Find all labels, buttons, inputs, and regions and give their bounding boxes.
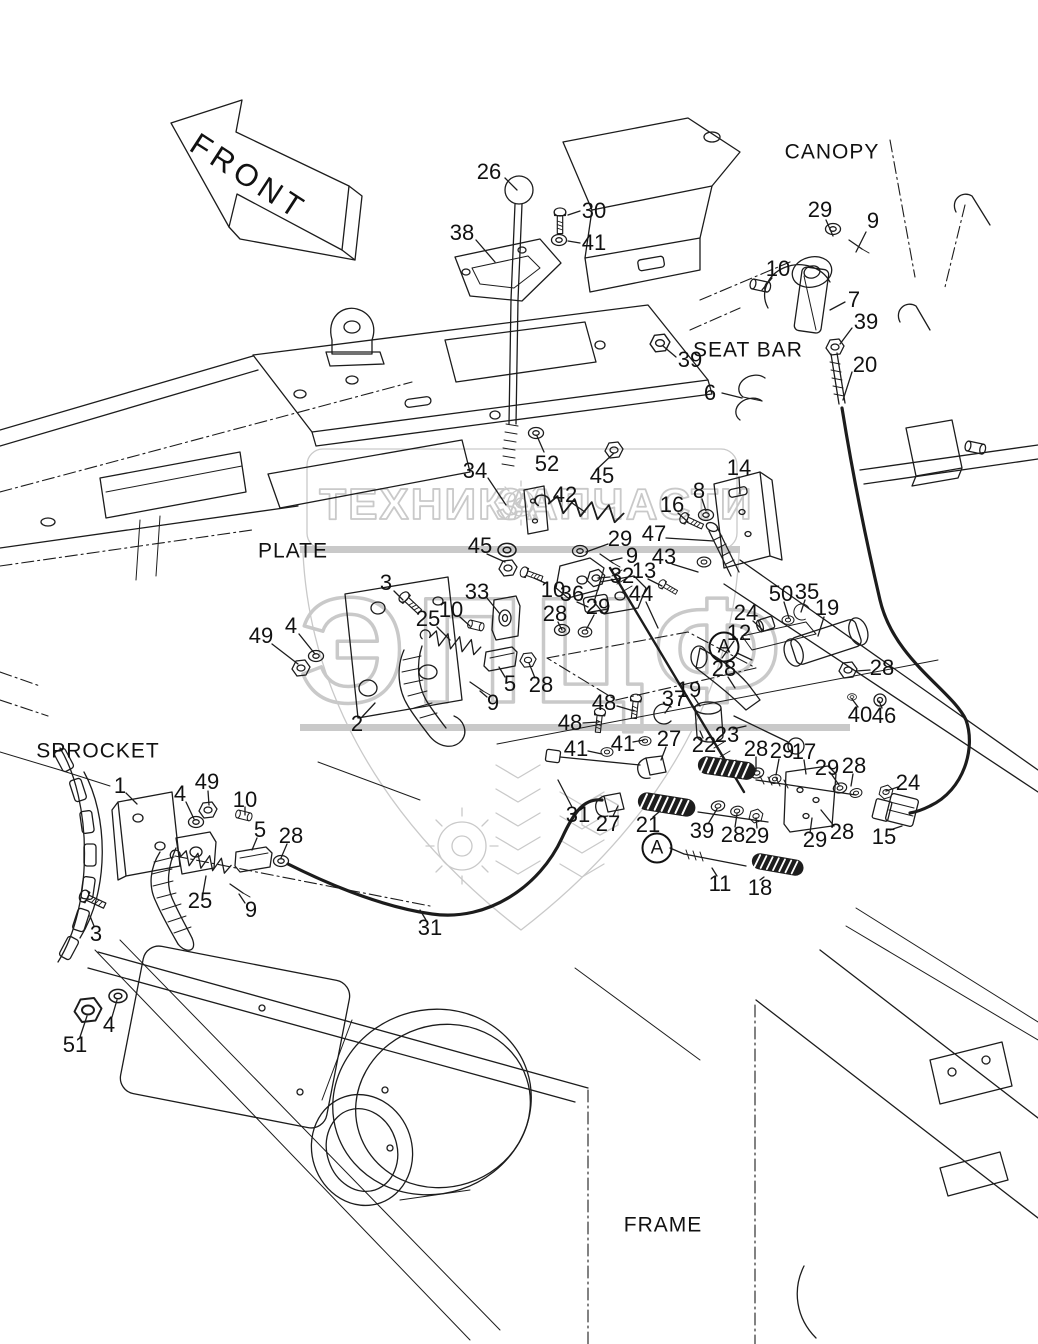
- part-label-33: 33: [465, 581, 489, 603]
- part-label-27: 27: [657, 728, 681, 750]
- part-label-20: 20: [853, 354, 877, 376]
- part-label-46: 46: [872, 705, 896, 727]
- part-label-29: 29: [815, 757, 839, 779]
- area-label-canopy: CANOPY: [785, 142, 880, 163]
- part-label-5: 5: [254, 819, 266, 841]
- part-label-51: 51: [63, 1034, 87, 1056]
- part-label-7: 7: [848, 289, 860, 311]
- part-label-4: 4: [103, 1014, 115, 1036]
- part-label-27: 27: [596, 813, 620, 835]
- part-label-28: 28: [529, 674, 553, 696]
- part-label-3: 3: [90, 923, 102, 945]
- part-label-45: 45: [590, 465, 614, 487]
- part-label-41: 41: [582, 232, 606, 254]
- part-label-9: 9: [487, 692, 499, 714]
- part-label-5: 5: [504, 673, 516, 695]
- detail-marker-a: A: [709, 632, 740, 663]
- part-label-25: 25: [188, 890, 212, 912]
- part-label-28: 28: [543, 603, 567, 625]
- part-label-22: 22: [692, 734, 716, 756]
- part-label-39: 39: [854, 311, 878, 333]
- part-label-13: 13: [632, 560, 656, 582]
- part-label-38: 38: [450, 222, 474, 244]
- part-label-45: 45: [468, 535, 492, 557]
- part-label-14: 14: [727, 457, 751, 479]
- part-label-8: 8: [693, 480, 705, 502]
- area-label-plate: PLATE: [258, 541, 328, 562]
- part-label-44: 44: [629, 583, 653, 605]
- part-label-39: 39: [690, 820, 714, 842]
- part-label-41: 41: [564, 738, 588, 760]
- part-label-37: 37: [662, 688, 686, 710]
- detail-marker-a: A: [642, 833, 673, 864]
- part-label-28: 28: [721, 824, 745, 846]
- part-label-17: 17: [792, 741, 816, 763]
- part-label-41: 41: [611, 733, 635, 755]
- parts-diagram-page: ТЕХНИКА ЗАПЧАСТИ ЭПЦФ: [0, 0, 1038, 1344]
- part-label-42: 42: [553, 484, 577, 506]
- part-label-25: 25: [416, 608, 440, 630]
- part-label-11: 11: [709, 873, 732, 895]
- part-label-6: 6: [704, 382, 716, 404]
- part-label-28: 28: [279, 825, 303, 847]
- part-label-19: 19: [815, 597, 839, 619]
- part-label-16: 16: [660, 494, 684, 516]
- part-label-3: 3: [380, 572, 392, 594]
- part-label-29: 29: [808, 199, 832, 221]
- part-label-26: 26: [477, 161, 501, 183]
- part-label-10: 10: [439, 599, 463, 621]
- label-layer: 2630384129910739203963452454214816472994…: [0, 0, 1038, 1344]
- part-label-29: 29: [586, 596, 610, 618]
- part-label-52: 52: [535, 453, 559, 475]
- part-label-28: 28: [744, 738, 768, 760]
- part-label-23: 23: [715, 724, 739, 746]
- part-label-48: 48: [592, 692, 616, 714]
- part-label-10: 10: [233, 789, 257, 811]
- part-label-29: 29: [770, 740, 794, 762]
- part-label-9: 9: [867, 210, 879, 232]
- part-label-29: 29: [803, 829, 827, 851]
- part-label-24: 24: [896, 772, 920, 794]
- part-label-31: 31: [566, 804, 590, 826]
- part-label-31: 31: [418, 917, 442, 939]
- part-label-48: 48: [558, 712, 582, 734]
- part-label-28: 28: [870, 657, 894, 679]
- part-label-50: 50: [769, 583, 793, 605]
- part-label-49: 49: [195, 771, 219, 793]
- part-label-9: 9: [245, 899, 257, 921]
- part-label-40: 40: [848, 704, 872, 726]
- part-label-30: 30: [582, 200, 606, 222]
- part-label-28: 28: [842, 755, 866, 777]
- part-label-2: 2: [351, 713, 363, 735]
- part-label-4: 4: [285, 615, 297, 637]
- part-label-47: 47: [642, 523, 666, 545]
- area-label-frame: FRAME: [624, 1215, 703, 1236]
- area-label-seat-bar: SEAT BAR: [693, 340, 803, 361]
- part-label-28: 28: [830, 821, 854, 843]
- part-label-15: 15: [872, 826, 896, 848]
- part-label-10: 10: [766, 258, 790, 280]
- area-label-sprocket: SPROCKET: [36, 741, 160, 762]
- part-label-1: 1: [114, 775, 126, 797]
- part-label-49: 49: [249, 625, 273, 647]
- part-label-4: 4: [174, 783, 186, 805]
- part-label-18: 18: [748, 877, 772, 899]
- part-label-29: 29: [745, 825, 769, 847]
- part-label-34: 34: [463, 460, 487, 482]
